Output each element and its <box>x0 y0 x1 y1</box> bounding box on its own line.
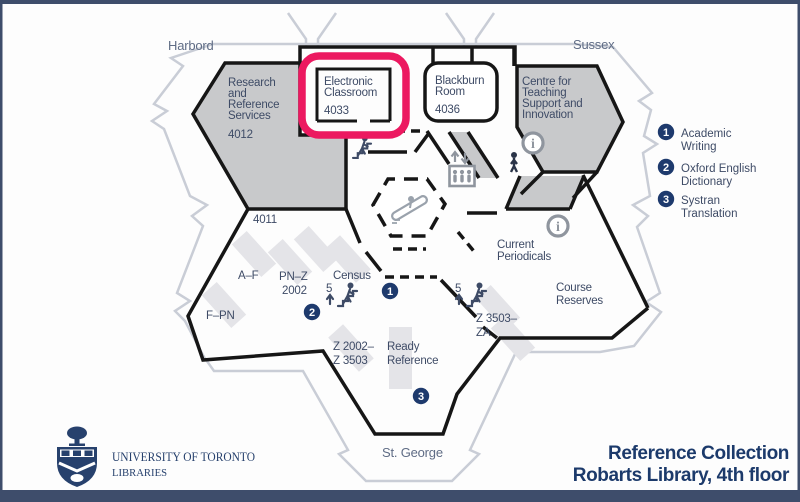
ctsi-label: Innovation <box>522 109 573 121</box>
map-title: Reference Collection Robarts Library, 4t… <box>573 443 790 486</box>
street-sussex: Sussex <box>573 37 615 52</box>
legend-item-academic-writing: Writing <box>681 141 717 153</box>
electronic-classroom-label: Classroom <box>324 87 377 99</box>
room-divider-walls <box>433 47 472 63</box>
corridor-wall <box>427 131 449 164</box>
floor-map-svg: i i Harbord Sussex St. George Research a… <box>0 0 800 502</box>
uoft-libraries-logo: UNIVERSITY OF TORONTO LIBRARIES <box>57 427 255 488</box>
stack-z3503-label: Z 3503– <box>476 313 518 325</box>
course-reserves-diagonal <box>583 175 648 308</box>
current-periodicals-label: Current <box>497 239 535 251</box>
badge-1: 1 <box>387 286 393 298</box>
badge-3: 3 <box>418 391 424 403</box>
stack-pnz-label: 2002 <box>282 285 307 297</box>
logo-institution: UNIVERSITY OF TORONTO <box>112 449 255 464</box>
escalator-core <box>373 179 445 236</box>
person-icon <box>511 152 517 172</box>
map-labels: Harbord Sussex St. George Research and R… <box>168 37 615 460</box>
legend-item-systran: Translation <box>681 208 737 220</box>
legend-badge-1-num: 1 <box>663 127 669 139</box>
badge-2: 2 <box>309 307 315 319</box>
course-reserves-label: Course <box>556 282 592 294</box>
street-harbord: Harbord <box>168 38 214 53</box>
entrance-funnel-left <box>288 13 336 47</box>
info-icon: i <box>548 216 568 236</box>
stairs-floor-number: 5 <box>455 283 461 295</box>
legend-item-systran: Systran <box>681 195 720 207</box>
uoft-crest-icon <box>57 427 97 488</box>
logo-division: LIBRARIES <box>112 468 167 479</box>
legend-badge-2-num: 2 <box>663 162 669 174</box>
ready-reference-label: Reference <box>387 355 438 367</box>
title-line-2: Robarts Library, 4th floor <box>573 465 790 486</box>
legend-item-oed: Dictionary <box>681 176 732 188</box>
legend-item-oed: Oxford English <box>681 163 756 175</box>
entrance-funnel-right <box>446 13 494 47</box>
legend-badge-3-num: 3 <box>663 194 669 206</box>
current-periodicals-label: Periodicals <box>497 251 551 263</box>
floor-map-page: i i Harbord Sussex St. George Research a… <box>0 0 800 502</box>
stack-af-label: A–F <box>238 270 259 282</box>
corridor-wall-dashed <box>458 232 477 255</box>
electronic-classroom-number: 4033 <box>324 105 349 117</box>
info-icon: i <box>523 133 543 153</box>
stack-pnz-label: PN–Z <box>279 271 308 283</box>
page-frame <box>0 0 800 502</box>
stack-fpn-label: F–PN <box>206 310 235 322</box>
course-reserves-label: Reserves <box>556 295 603 307</box>
stack-census-label: Census <box>333 270 371 282</box>
research-label: Services <box>228 110 271 122</box>
blackburn-number: 4036 <box>435 104 460 116</box>
up-arrow-icon <box>327 295 333 304</box>
research-room-number: 4012 <box>228 129 253 141</box>
legend: 1 Academic Writing 2 Oxford English Dict… <box>658 124 757 220</box>
room-4011-label: 4011 <box>253 214 277 226</box>
info-symbol: i <box>531 137 535 152</box>
stairs-icon-top <box>353 136 371 158</box>
stack-z3503-label: ZA <box>476 327 491 339</box>
street-st-george: St. George <box>382 445 443 460</box>
legend-item-academic-writing: Academic <box>681 128 732 140</box>
stack-z2002-label: Z 3503 <box>333 355 368 367</box>
blackburn-label: Room <box>435 86 465 98</box>
stairs-floor-number: 5 <box>326 283 332 295</box>
stack-z2002-label: Z 2002– <box>333 341 375 353</box>
info-symbol: i <box>556 220 560 235</box>
title-line-1: Reference Collection <box>608 443 789 464</box>
book-stacks <box>202 226 535 389</box>
ready-reference-label: Ready <box>387 341 420 353</box>
